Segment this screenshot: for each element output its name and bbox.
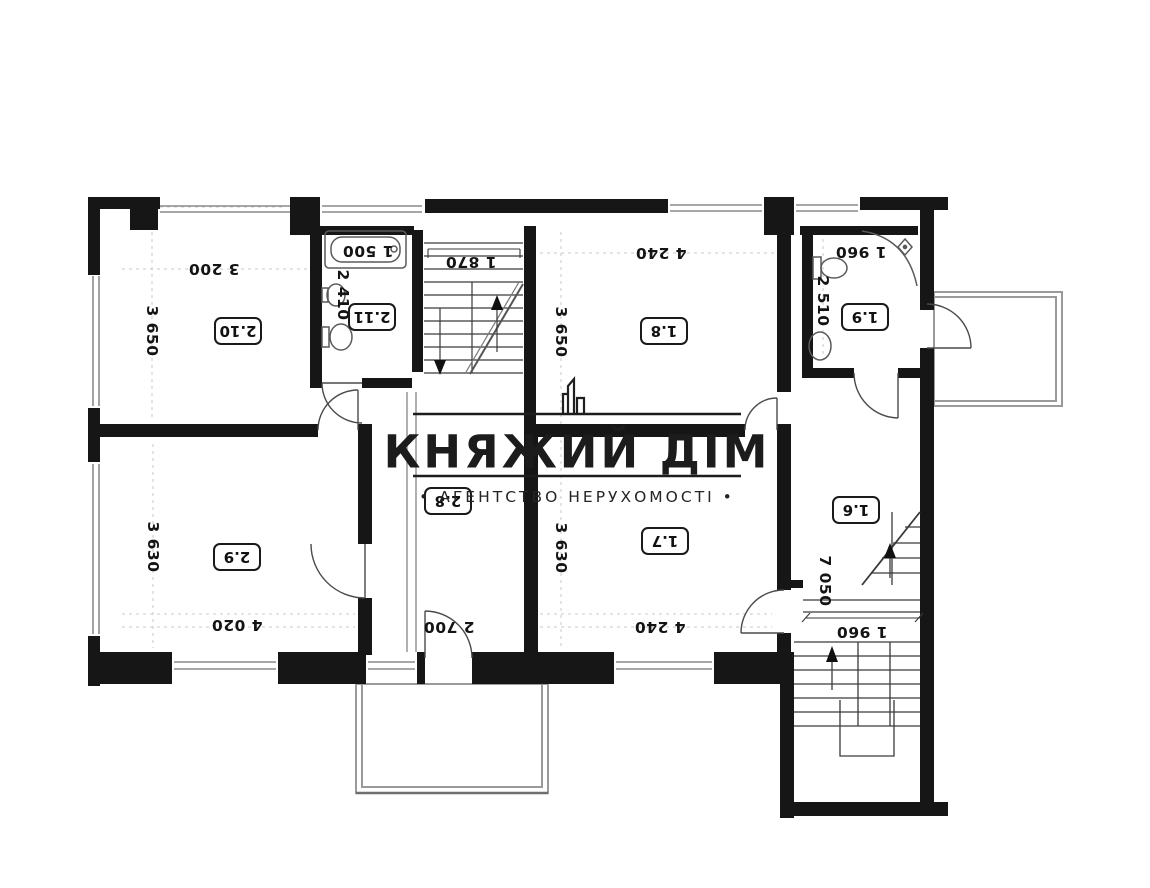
svg-text:1.9: 1.9 xyxy=(852,308,879,326)
dim-1-7-width: 4 240 xyxy=(634,618,685,636)
dim-2-10-depth: 3 650 xyxy=(143,305,161,356)
staircase-lower xyxy=(794,642,920,756)
svg-text:1.8: 1.8 xyxy=(651,322,678,340)
toilet-fixture xyxy=(330,324,352,350)
agency-watermark: КНЯЖИЙ ДІМ • АГЕНТСТВО НЕРУХОМОСТІ • xyxy=(384,379,771,506)
stair-landing xyxy=(840,700,894,756)
dim-2-9-depth: 3 630 xyxy=(144,521,162,572)
dim-1-9-width: 1 960 xyxy=(835,243,886,261)
svg-text:1.6: 1.6 xyxy=(843,501,870,519)
room-label-2-10: 2.10 xyxy=(215,318,261,344)
dim-2-11-width: 1 500 xyxy=(342,242,393,260)
agency-tagline: • АГЕНТСТВО НЕРУХОМОСТІ • xyxy=(419,488,735,506)
room-label-2-9: 2.9 xyxy=(214,544,260,570)
door-room-2-9 xyxy=(311,544,365,598)
dim-lower-stair: 1 960 xyxy=(836,623,887,641)
door-room-2-11 xyxy=(322,383,362,423)
dim-2-10-width: 3 200 xyxy=(188,260,239,278)
room-label-2-11: 2.11 xyxy=(349,304,395,330)
dim-1-9-depth: 2 510 xyxy=(814,275,832,326)
toilet-tank xyxy=(322,327,329,347)
dim-1-6-depth: 7 050 xyxy=(816,555,834,606)
terrace-outline xyxy=(934,292,1062,406)
room-label-1-6: 1.6 xyxy=(833,497,879,523)
svg-text:2.10: 2.10 xyxy=(219,322,256,340)
dim-2-9-width: 4 020 xyxy=(211,616,262,634)
dim-2-8-width: 2 700 xyxy=(423,618,474,636)
floor-plan-canvas: 3 200 3 650 1 500 2 410 1 870 4 240 3 65… xyxy=(0,0,1150,888)
dim-1-8-depth: 3 650 xyxy=(552,306,570,357)
dim-1-7-depth: 3 630 xyxy=(552,522,570,573)
room-label-1-8: 1.8 xyxy=(641,318,687,344)
porch-outline xyxy=(356,684,548,793)
floor-plan-page: 3 200 3 650 1 500 2 410 1 870 4 240 3 65… xyxy=(0,0,1150,888)
building-skyline-icon xyxy=(563,379,584,413)
room-label-1-9: 1.9 xyxy=(842,304,888,330)
dim-upper-stair: 1 870 xyxy=(445,253,496,271)
svg-text:1.7: 1.7 xyxy=(652,532,679,550)
dim-1-8-width: 4 240 xyxy=(635,244,686,262)
svg-text:2.11: 2.11 xyxy=(353,308,390,326)
doors xyxy=(311,304,971,658)
door-room-1-9 xyxy=(854,373,898,418)
door-room-1-7 xyxy=(741,590,784,633)
stair-up-arrow xyxy=(491,295,503,310)
dim-line-lower-stair xyxy=(802,613,923,622)
svg-text:2.9: 2.9 xyxy=(224,548,251,566)
agency-name: КНЯЖИЙ ДІМ xyxy=(384,426,771,479)
stair-up-arrow xyxy=(826,646,838,662)
room-label-1-7: 1.7 xyxy=(642,528,688,554)
